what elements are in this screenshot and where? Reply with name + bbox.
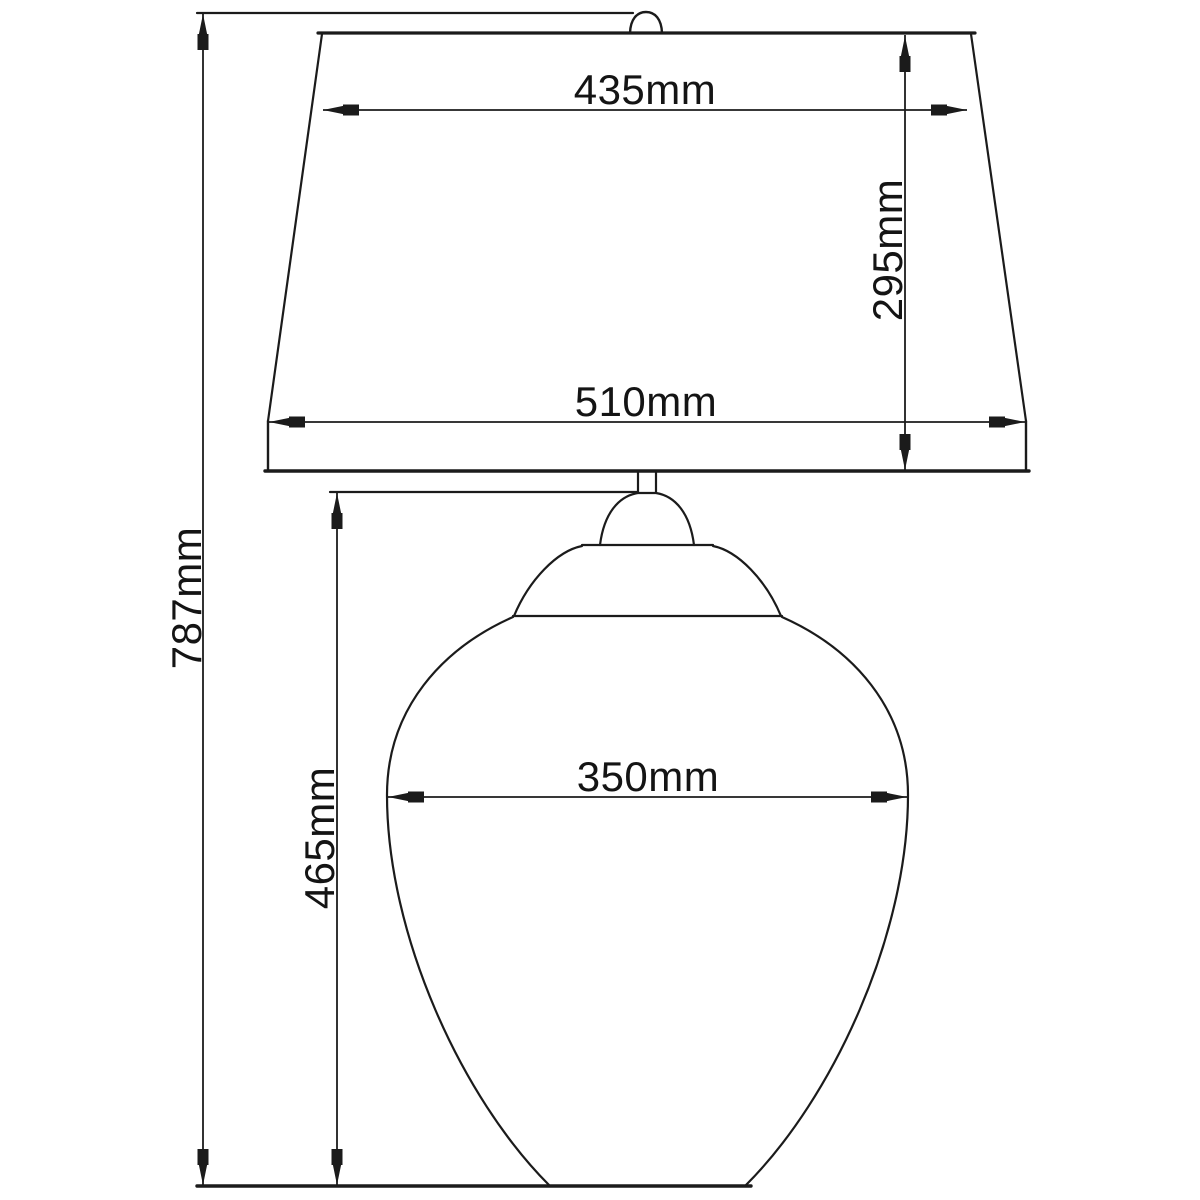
arrow-right-icon	[931, 105, 967, 116]
arrow-down-icon	[900, 434, 911, 470]
shade-right-side	[971, 34, 1026, 421]
drawing-canvas: 435mm 295mm 510mm 787mm 350mm 465mm	[0, 0, 1200, 1200]
arrow-left-icon	[388, 792, 424, 803]
dimension-label-body-width: 350mm	[577, 753, 720, 800]
dimension-label-shade-height: 295mm	[864, 179, 911, 322]
dimension-label-shade-bottom-width: 510mm	[575, 378, 718, 425]
dimension-label-shade-top-width: 435mm	[574, 66, 717, 113]
arrow-up-icon	[198, 14, 209, 50]
arrow-right-icon	[989, 417, 1025, 428]
dimension-label-overall-height: 787mm	[163, 527, 210, 670]
dimension-labels: 435mm 295mm 510mm 787mm 350mm 465mm	[163, 66, 911, 909]
arrow-up-icon	[900, 36, 911, 72]
arrow-right-icon	[871, 792, 907, 803]
shade-left-side	[268, 34, 322, 421]
shoulder-right-curve	[713, 546, 781, 616]
shoulder-left-curve	[514, 546, 582, 616]
lamp-dimension-drawing: 435mm 295mm 510mm 787mm 350mm 465mm	[0, 0, 1200, 1200]
cap-dome	[600, 493, 694, 545]
finial-dome	[630, 12, 662, 33]
arrow-down-icon	[332, 1149, 343, 1185]
body-left-curve	[387, 617, 549, 1185]
body-right-curve	[746, 617, 908, 1185]
arrow-left-icon	[269, 417, 305, 428]
arrow-left-icon	[323, 105, 359, 116]
lamp-neck	[638, 472, 656, 492]
arrow-up-icon	[332, 493, 343, 529]
arrow-down-icon	[198, 1149, 209, 1185]
dimension-label-body-height: 465mm	[296, 767, 343, 910]
